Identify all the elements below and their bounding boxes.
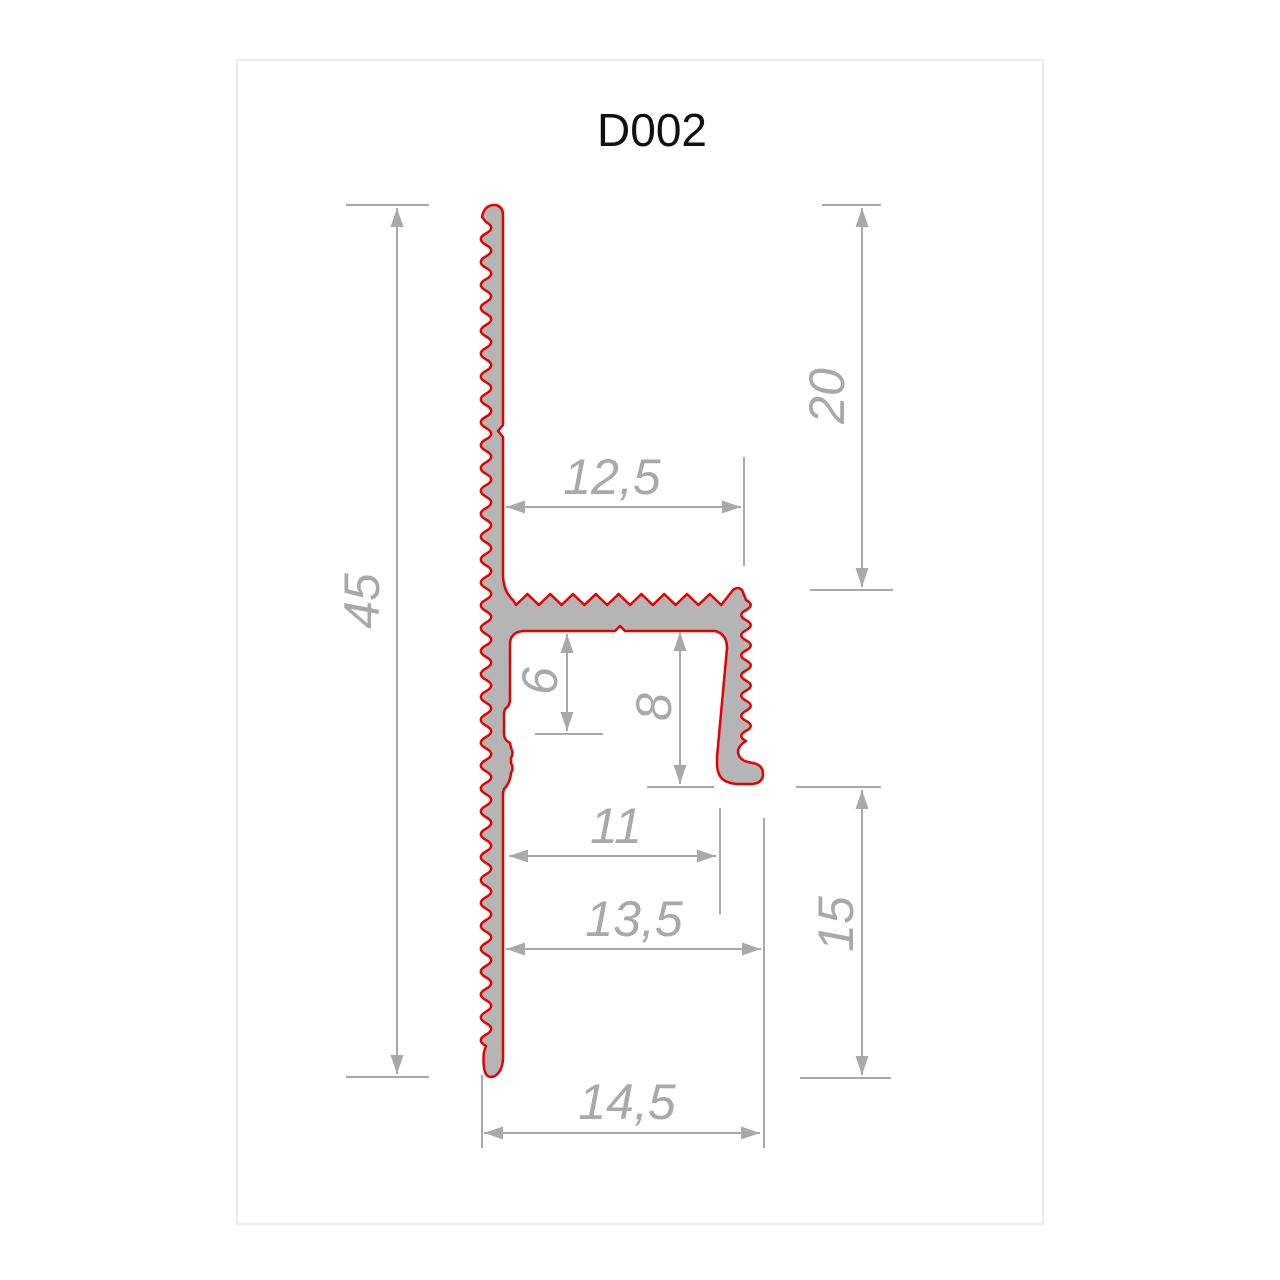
dim-label-upper-right-height: 20	[799, 368, 855, 425]
dim-label-arm-width: 12,5	[563, 449, 661, 505]
dim-label-total-height: 45	[334, 573, 390, 629]
drawing-page: D002 45 20 12,5 6 8 11 13,5 15 14,5	[0, 0, 1280, 1280]
dim-label-inner-step: 6	[512, 667, 568, 695]
dim-label-lower-inner-width: 11	[590, 798, 642, 854]
drawing-sheet	[237, 60, 1043, 1224]
dim-label-base-width: 14,5	[578, 1074, 676, 1130]
technical-drawing: D002 45 20 12,5 6 8 11 13,5 15 14,5	[0, 0, 1280, 1280]
dim-label-lower-right-height: 15	[808, 896, 864, 952]
drawing-title: D002	[597, 104, 707, 156]
dim-label-leg-depth: 8	[626, 693, 682, 721]
dim-label-lower-mid-width: 13,5	[585, 891, 683, 947]
